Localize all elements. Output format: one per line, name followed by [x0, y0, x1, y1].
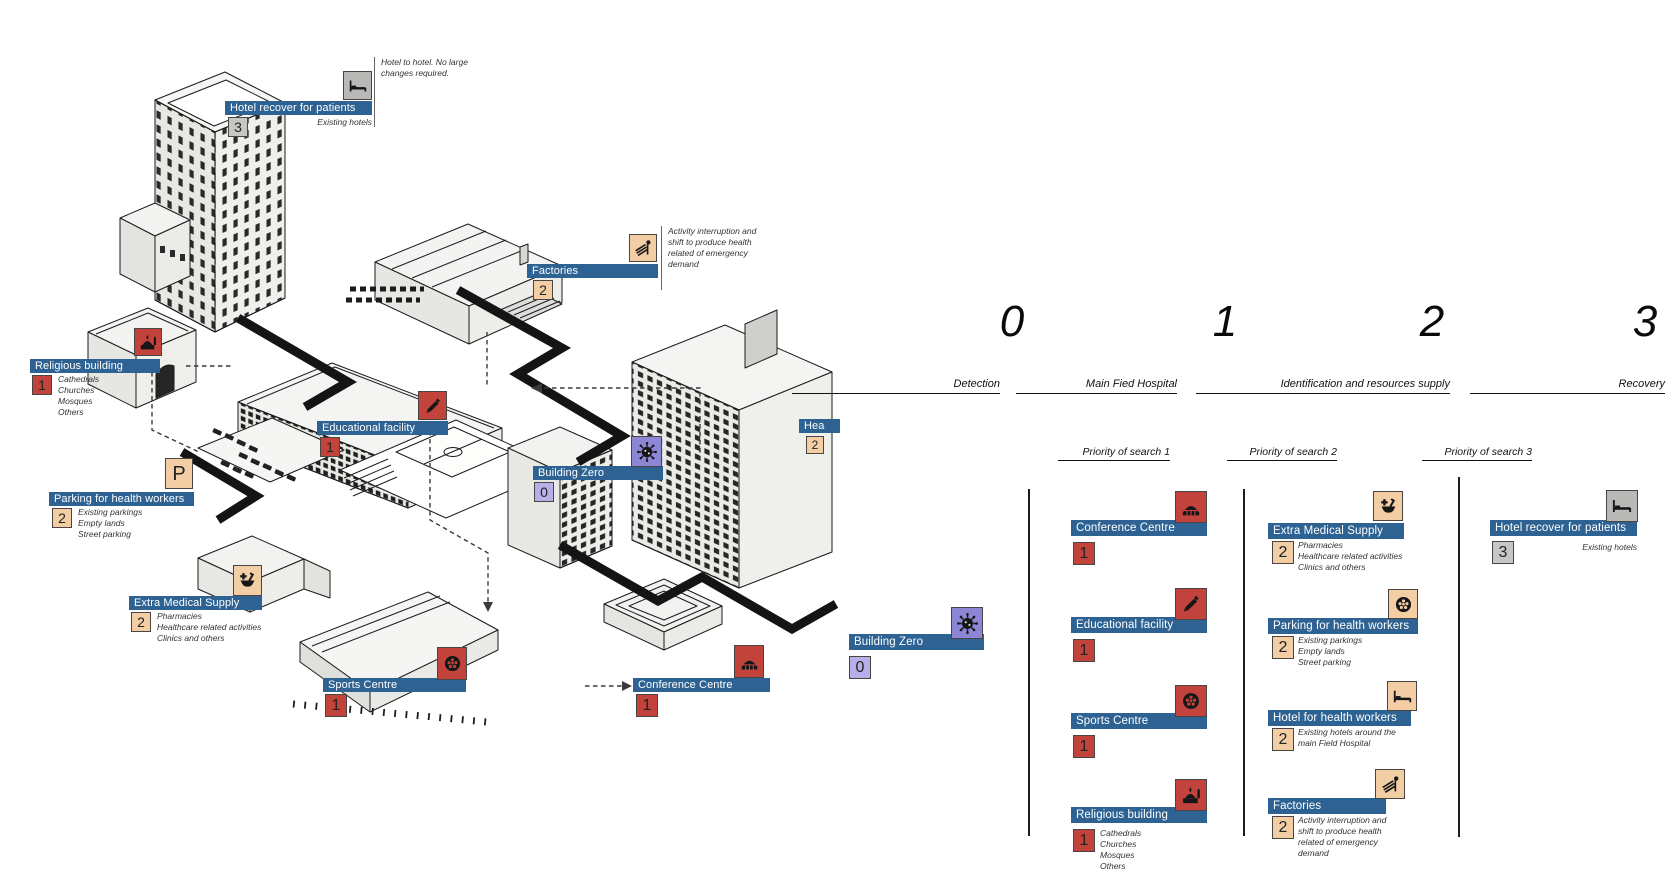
priority-badge: 1: [1073, 735, 1095, 758]
sub-line: Clinics and others: [1298, 562, 1402, 573]
timeline-label-hotel-recover-for-patients: Hotel recover for patients: [1490, 520, 1637, 536]
phase-number-2: 2: [1405, 297, 1459, 347]
sub-line: Mosques: [1100, 850, 1141, 861]
bed-icon: [1606, 490, 1638, 522]
annotation-factories: Activity interruption and shift to produ…: [661, 226, 766, 290]
map-sub-religious: Cathedrals Churches Mosques Others: [58, 374, 99, 418]
phase-name-main-fied-hospital: Main Fied Hospital: [1016, 378, 1177, 394]
map-label-parking-for-health-workers: Parking for health workers: [49, 492, 194, 506]
timeline-sub-parking: Existing parkings Empty lands Street par…: [1298, 635, 1362, 668]
parking-letter: P: [172, 464, 185, 484]
phase-number-3: 3: [1618, 297, 1672, 347]
annotation-hotel-to-hotel: Hotel to hotel. No large changes require…: [374, 57, 471, 127]
column-divider: [1243, 489, 1245, 836]
sub-line: Street parking: [78, 529, 142, 540]
pharmacy-icon: [1373, 491, 1403, 521]
priority-badge: 2: [1272, 728, 1294, 751]
sub-line: Others: [58, 407, 99, 418]
priority-badge: 2: [1272, 816, 1294, 839]
map-label-religious-building: Religious building: [30, 359, 160, 373]
religious-icon: [134, 328, 162, 356]
ball-icon: [437, 647, 467, 680]
timeline-label-factories: Factories: [1268, 798, 1386, 814]
timeline-label-extra-medical-supply: Extra Medical Supply: [1268, 523, 1404, 539]
sub-line: Pharmacies: [1298, 540, 1402, 551]
map-label-extra-medical-supply: Extra Medical Supply: [129, 596, 262, 610]
timeline-sub-extra-medical: Pharmacies Healthcare related activities…: [1298, 540, 1402, 573]
map-label-conference-centre: Conference Centre: [633, 678, 770, 692]
phase-number-0: 0: [985, 297, 1039, 347]
priority-badge: 1: [320, 437, 340, 457]
factory-icon: [629, 234, 657, 262]
wheel-icon: [1388, 589, 1418, 619]
infographic-page: Hotel recover for patients 3 Existing ho…: [0, 0, 1675, 878]
priority-badge: 2: [1272, 636, 1294, 659]
parking-icon: P: [165, 458, 193, 489]
sub-line: Street parking: [1298, 657, 1362, 668]
column-divider: [1028, 489, 1030, 836]
virus-icon: [951, 607, 983, 639]
priority-badge: 1: [636, 694, 658, 717]
phase-name-detection: Detection: [792, 378, 1000, 394]
priority-badge: 3: [1492, 541, 1514, 564]
sub-line: Cathedrals: [1100, 828, 1141, 839]
sub-line: Mosques: [58, 396, 99, 407]
priority-badge: 2: [131, 612, 151, 632]
priority-of-search-3: Priority of search 3: [1422, 446, 1532, 461]
map-sub-existing-hotels: Existing hotels: [272, 117, 372, 128]
ball-icon: [1175, 685, 1207, 717]
education-icon: [418, 391, 447, 420]
timeline-sub-factories: Activity interruption and shift to produ…: [1298, 815, 1403, 859]
map-label-sports-centre: Sports Centre: [323, 678, 466, 692]
priority-badge: 1: [1073, 542, 1095, 565]
phase-number-1: 1: [1198, 297, 1252, 347]
priority-badge: 0: [849, 656, 871, 679]
religious-icon: [1175, 779, 1207, 811]
phase-name-identification: Identification and resources supply: [1196, 378, 1450, 394]
priority-badge: 1: [32, 375, 52, 395]
sub-line: Others: [1100, 861, 1141, 872]
factory-icon: [1375, 769, 1405, 799]
sub-line: Churches: [58, 385, 99, 396]
map-label-hotel-recover-for-patients: Hotel recover for patients: [225, 101, 372, 115]
bed-icon: [343, 71, 372, 100]
timeline-sub-religious: Cathedrals Churches Mosques Others: [1100, 828, 1141, 872]
timeline-sub-hotel-recover: Existing hotels: [1540, 542, 1637, 553]
map-label-educational-facility: Educational facility: [317, 421, 448, 435]
priority-badge: 2: [533, 280, 553, 300]
priority-badge: 2: [806, 436, 824, 454]
sub-line: Churches: [1100, 839, 1141, 850]
timeline-label-hotel-for-health-workers: Hotel for health workers: [1268, 710, 1411, 726]
phase-name-recovery: Recovery: [1470, 378, 1665, 394]
map-label-factories: Factories: [527, 264, 658, 278]
sub-line: Existing parkings: [1298, 635, 1362, 646]
priority-badge: 2: [52, 508, 72, 528]
bed-icon: [1387, 681, 1417, 711]
sub-line: Existing parkings: [78, 507, 142, 518]
timeline-label-parking-for-health-workers: Parking for health workers: [1268, 618, 1418, 634]
timeline-sub-hotel-for-health-workers: Existing hotels around the main Field Ho…: [1298, 727, 1408, 749]
priority-of-search-1: Priority of search 1: [1058, 446, 1170, 461]
conference-icon: [734, 645, 764, 678]
priority-badge: 1: [1073, 829, 1095, 852]
sub-line: Healthcare related activities: [1298, 551, 1402, 562]
map-label-health-partial: Hea: [799, 419, 840, 433]
conference-icon: [1175, 491, 1207, 523]
priority-of-search-2: Priority of search 2: [1227, 446, 1337, 461]
sub-line: Clinics and others: [157, 633, 261, 644]
map-sub-extra-medical: Pharmacies Healthcare related activities…: [157, 611, 261, 644]
sub-line: Cathedrals: [58, 374, 99, 385]
priority-badge: 0: [534, 482, 554, 502]
sub-line: Empty lands: [78, 518, 142, 529]
priority-badge: 1: [325, 694, 347, 717]
city-map-illustration: [0, 0, 840, 878]
map-label-building-zero: Building Zero: [533, 466, 663, 480]
pharmacy-icon: [233, 565, 262, 596]
map-sub-parking: Existing parkings Empty lands Street par…: [78, 507, 142, 540]
priority-badge: 1: [1073, 639, 1095, 662]
priority-badge: 3: [228, 117, 248, 137]
sub-line: Pharmacies: [157, 611, 261, 622]
education-icon: [1175, 588, 1207, 620]
priority-badge: 2: [1272, 541, 1294, 564]
sub-line: Healthcare related activities: [157, 622, 261, 633]
sub-line: Empty lands: [1298, 646, 1362, 657]
column-divider: [1458, 477, 1460, 837]
virus-icon: [631, 436, 662, 467]
